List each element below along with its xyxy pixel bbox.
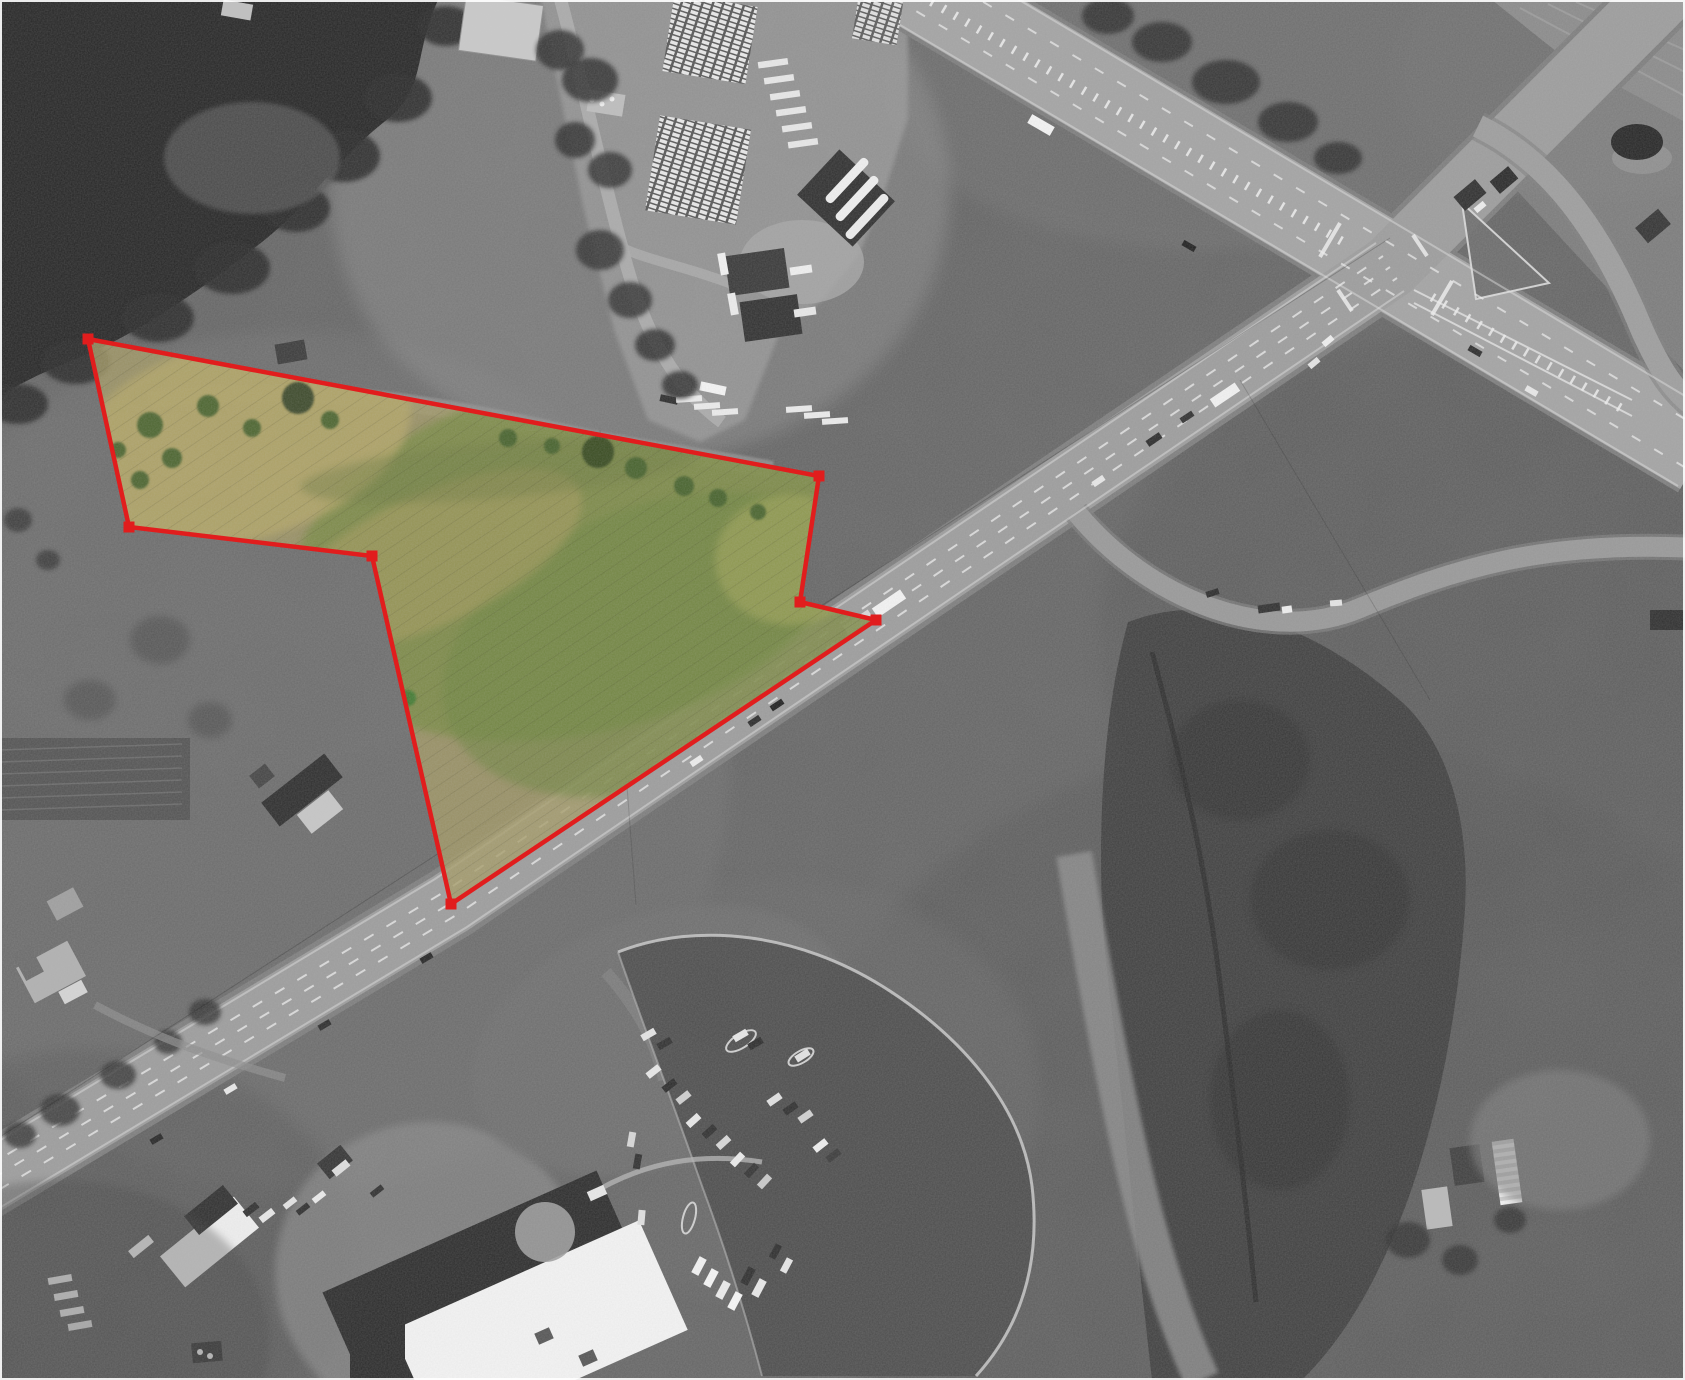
- parcel-vertex-marker-0: [83, 334, 94, 345]
- aerial-scene: [0, 0, 1685, 1380]
- parcel-vertex-marker-3: [871, 615, 882, 626]
- aerial-map: [0, 0, 1685, 1380]
- photo-grain: [0, 0, 1685, 1380]
- parcel-vertex-marker-1: [814, 471, 825, 482]
- parcel-vertex-marker-5: [367, 551, 378, 562]
- parcel-vertex-marker-6: [124, 522, 135, 533]
- parcel-vertex-marker-2: [795, 597, 806, 608]
- layer-annotation: [0, 0, 1685, 1380]
- parcel-vertex-marker-4: [446, 899, 457, 910]
